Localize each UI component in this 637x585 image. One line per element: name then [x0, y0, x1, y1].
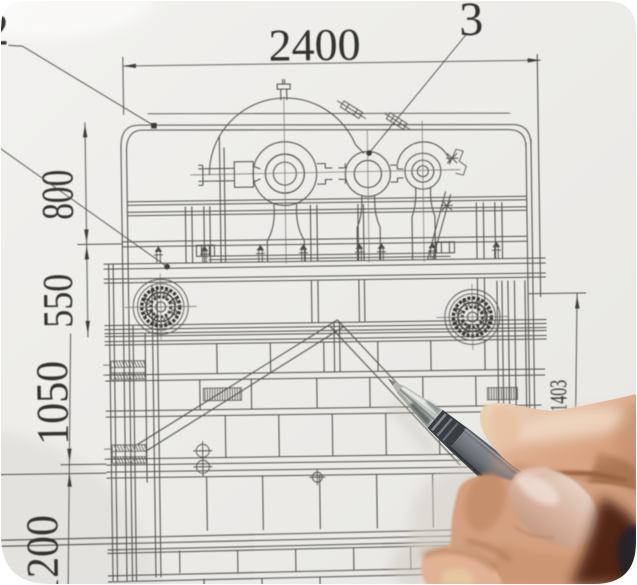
svg-text:550: 550	[36, 273, 83, 328]
svg-text:2400: 2400	[268, 20, 361, 71]
svg-text:3: 3	[459, 0, 484, 46]
svg-text:1200: 1200	[17, 515, 68, 585]
svg-text:1050: 1050	[27, 361, 78, 446]
svg-text:1403: 1403	[546, 380, 572, 412]
